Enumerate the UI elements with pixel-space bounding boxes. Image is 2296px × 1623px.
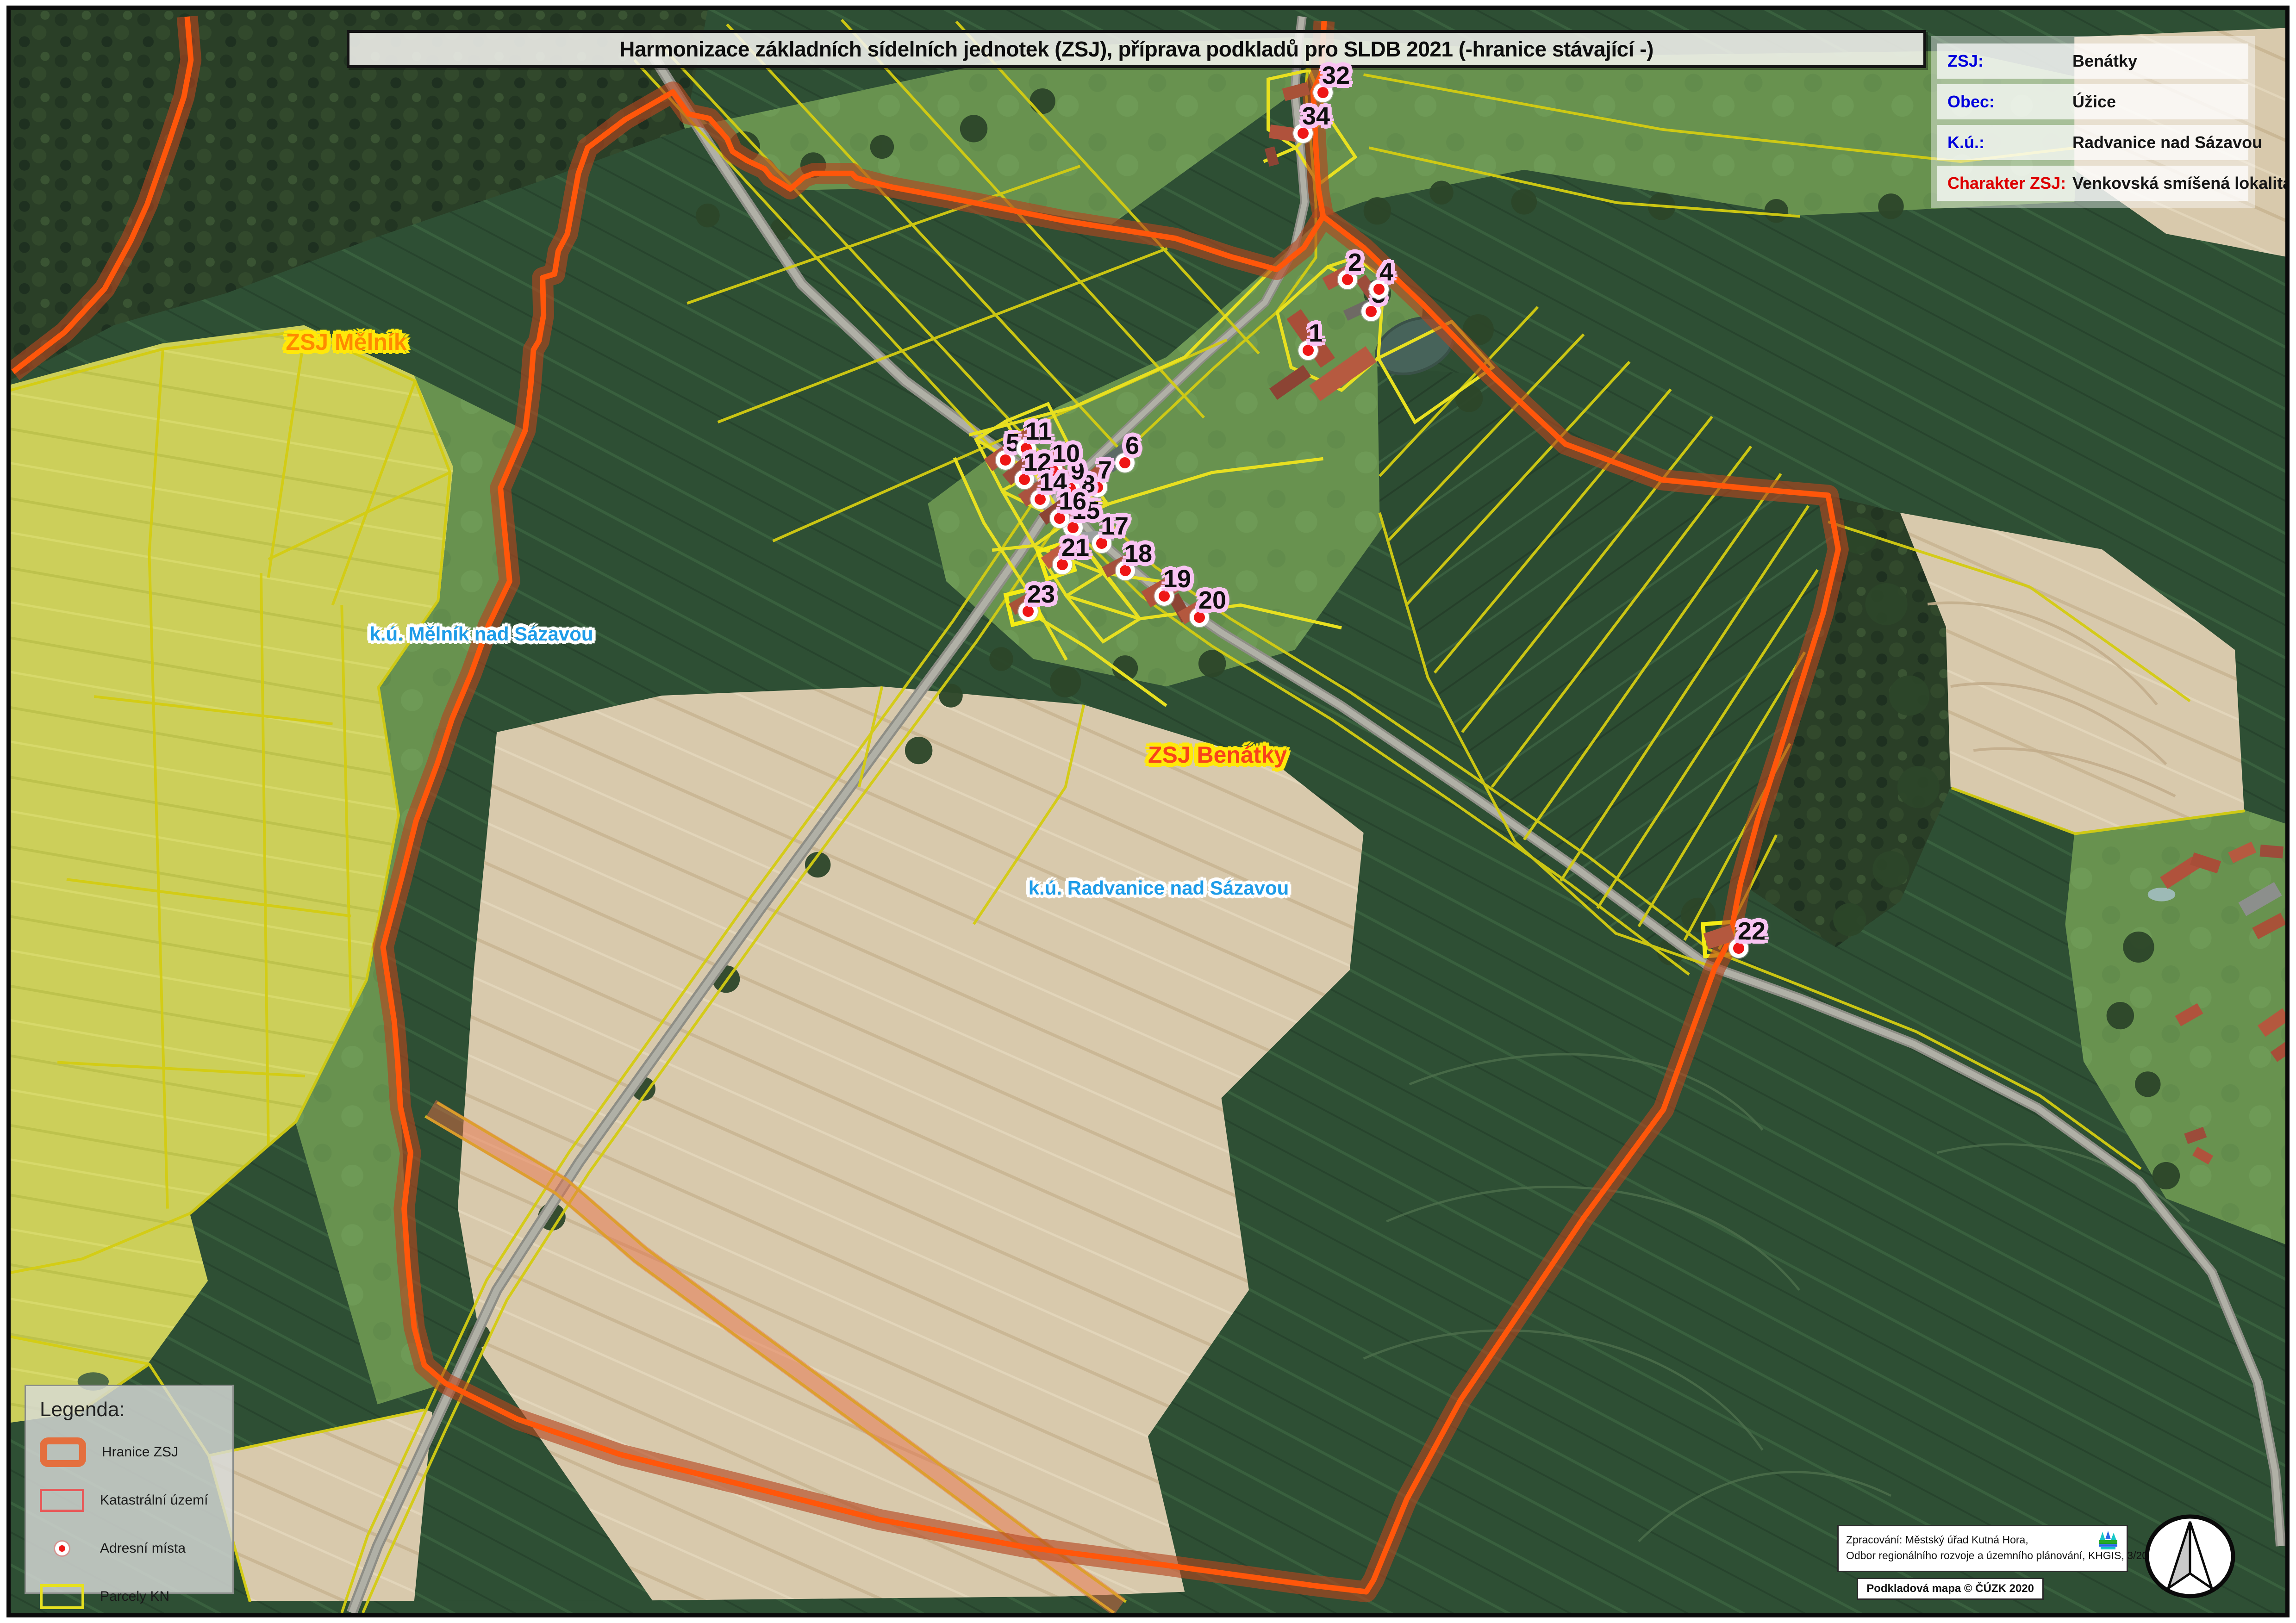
map-frame: Harmonizace základních sídelních jednote… bbox=[6, 6, 2290, 1617]
address-point-number: 32 bbox=[1322, 61, 1350, 90]
info-row-ku: K.ú.: Radvanice nad Sázavou bbox=[1937, 125, 2248, 160]
label-ku-melnik: k.ú. Mělník nad Sázavou bbox=[369, 623, 593, 645]
info-label: Obec: bbox=[1947, 92, 2072, 112]
legend-item-parcely-kn: Parcely KN bbox=[40, 1581, 218, 1612]
address-point-number: 16 bbox=[1059, 487, 1086, 516]
legend-item-katastralni-uzemi: Katastrální území bbox=[40, 1485, 218, 1516]
info-row-zsj: ZSJ: Benátky bbox=[1937, 44, 2248, 79]
legend-item-label: Adresní místa bbox=[100, 1541, 186, 1556]
info-row-obec: Obec: Úžice bbox=[1937, 84, 2248, 119]
title-bar: Harmonizace základních sídelních jednote… bbox=[347, 30, 1926, 68]
address-point-number: 21 bbox=[1061, 533, 1089, 562]
credits-line1: Zpracování: Městský úřad Kutná Hora, bbox=[1846, 1532, 2119, 1548]
info-value: Benátky bbox=[2072, 51, 2137, 71]
map-sheet: Harmonizace základních sídelních jednote… bbox=[0, 0, 2296, 1623]
legend-item-hranice-zsj: Hranice ZSJ bbox=[40, 1437, 218, 1468]
kutna-hora-logo-icon bbox=[2096, 1530, 2120, 1551]
cadastral-swatch bbox=[40, 1489, 84, 1512]
address-point-number: 22 bbox=[1738, 917, 1766, 945]
address-point-number: 1 bbox=[1309, 319, 1323, 348]
address-point-number: 7 bbox=[1098, 456, 1112, 485]
north-arrow bbox=[2144, 1514, 2236, 1598]
credits-box: Zpracování: Městský úřad Kutná Hora, Odb… bbox=[1837, 1525, 2128, 1572]
info-box: ZSJ: Benátky Obec: Úžice K.ú.: Radvanice… bbox=[1931, 36, 2255, 208]
address-point-swatch bbox=[40, 1542, 84, 1555]
address-point-number: 20 bbox=[1198, 586, 1226, 615]
address-point-number: 17 bbox=[1101, 512, 1129, 541]
address-point-number: 2 bbox=[1348, 248, 1362, 277]
page-title: Harmonizace základních sídelních jednote… bbox=[619, 37, 1653, 62]
parcel-swatch bbox=[40, 1584, 84, 1609]
label-zsj-benatky: ZSJ Benátky bbox=[1148, 741, 1287, 768]
address-point-number: 11 bbox=[1025, 417, 1052, 446]
info-label: K.ú.: bbox=[1947, 133, 2072, 152]
address-point-number: 19 bbox=[1163, 565, 1191, 593]
address-point-number: 4 bbox=[1379, 258, 1393, 286]
legend-item-label: Parcely KN bbox=[100, 1589, 169, 1604]
address-point-number: 10 bbox=[1052, 439, 1080, 468]
info-label: ZSJ: bbox=[1947, 51, 2072, 71]
zsj-boundary-swatch bbox=[40, 1437, 86, 1467]
address-point-number: 34 bbox=[1302, 102, 1330, 131]
address-point-number: 23 bbox=[1027, 580, 1055, 609]
legend-item-label: Hranice ZSJ bbox=[102, 1444, 178, 1460]
label-zsj-melnik: ZSJ Mělník bbox=[286, 329, 406, 355]
legend: Legenda: Hranice ZSJ Katastrální území A… bbox=[25, 1385, 234, 1594]
basemap-credit-box: Podkladová mapa © ČÚZK 2020 bbox=[1857, 1578, 2044, 1600]
legend-item-label: Katastrální území bbox=[100, 1492, 208, 1508]
address-point-number: 18 bbox=[1124, 539, 1152, 568]
info-value: Radvanice nad Sázavou bbox=[2072, 133, 2262, 152]
info-row-charakter: Charakter ZSJ: Venkovská smíšená lokalit… bbox=[1937, 166, 2248, 201]
info-label: Charakter ZSJ: bbox=[1947, 174, 2072, 193]
basemap-credit: Podkladová mapa © ČÚZK 2020 bbox=[1866, 1582, 2034, 1595]
credits-line2: Odbor regionálního rozvoje a územního pl… bbox=[1846, 1548, 2119, 1563]
legend-item-adresni-mista: Adresní místa bbox=[40, 1533, 218, 1564]
address-point-number: 6 bbox=[1125, 431, 1139, 460]
info-value: Úžice bbox=[2072, 92, 2116, 112]
aerial-map-canvas bbox=[11, 10, 2285, 1613]
label-ku-radvanice: k.ú. Radvanice nad Sázavou bbox=[1029, 877, 1289, 899]
info-value: Venkovská smíšená lokalita bbox=[2072, 174, 2290, 193]
legend-title: Legenda: bbox=[40, 1398, 218, 1421]
